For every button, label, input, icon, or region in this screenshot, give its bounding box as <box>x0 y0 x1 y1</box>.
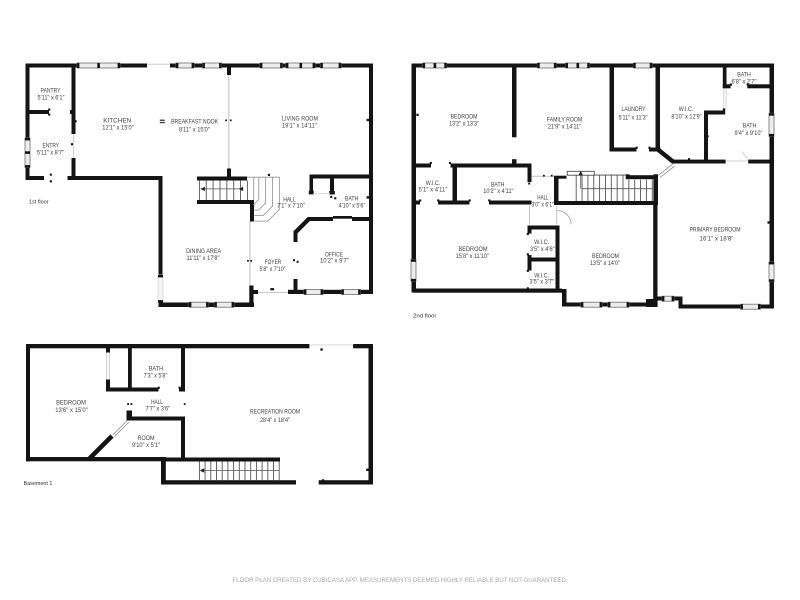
svg-text:12'1" x 15'0": 12'1" x 15'0" <box>102 126 134 132</box>
svg-text:5'1" x 4'11": 5'1" x 4'11" <box>419 187 448 193</box>
svg-text:3'5" x 4'6": 3'5" x 4'6" <box>530 247 555 253</box>
svg-text:7'1" x 7'10": 7'1" x 7'10" <box>277 204 305 210</box>
svg-text:16'1" x 18'8": 16'1" x 18'8" <box>700 236 734 242</box>
svg-text:2nd floor: 2nd floor <box>413 314 436 320</box>
svg-text:8'11" x 15'0": 8'11" x 15'0" <box>179 127 210 133</box>
svg-text:3'5" x 3'7": 3'5" x 3'7" <box>529 279 554 285</box>
svg-text:13'6" x 15'0": 13'6" x 15'0" <box>55 408 88 414</box>
svg-text:BATH: BATH <box>743 122 757 129</box>
svg-text:13'5" x 14'0": 13'5" x 14'0" <box>590 261 620 267</box>
svg-text:Basement 1: Basement 1 <box>24 481 53 487</box>
svg-text:BATH: BATH <box>345 196 359 203</box>
svg-text:FLOOR PLAN CREATED BY CUBICASA: FLOOR PLAN CREATED BY CUBICASA APP. MEAS… <box>233 577 568 584</box>
svg-text:5'8" x 7'10": 5'8" x 7'10" <box>259 267 285 273</box>
svg-text:W.I.C.: W.I.C. <box>534 239 549 246</box>
svg-text:BATH: BATH <box>149 365 164 372</box>
svg-text:BEDROOM: BEDROOM <box>459 246 488 253</box>
svg-text:FAMILY ROOM: FAMILY ROOM <box>547 116 583 123</box>
svg-text:10'2" x 4'11": 10'2" x 4'11" <box>483 189 513 195</box>
svg-text:HALL: HALL <box>151 399 163 406</box>
svg-text:3'0" x 6'1": 3'0" x 6'1" <box>531 202 554 208</box>
svg-text:HALL: HALL <box>537 194 549 201</box>
svg-text:OFFICE: OFFICE <box>325 251 343 258</box>
svg-text:6'8" x 2'7": 6'8" x 2'7" <box>732 79 757 85</box>
svg-text:15'8" x 11'10": 15'8" x 11'10" <box>456 254 489 260</box>
svg-text:28'4" x 18'4": 28'4" x 18'4" <box>260 418 290 424</box>
svg-text:ENTRY: ENTRY <box>43 142 60 149</box>
svg-text:11'11" x 17'8": 11'11" x 17'8" <box>187 256 220 262</box>
svg-text:4'10" x 5'6": 4'10" x 5'6" <box>339 204 366 210</box>
svg-text:BEDROOM: BEDROOM <box>592 253 619 260</box>
svg-text:BATH: BATH <box>491 181 505 188</box>
svg-text:RECREATION ROOM: RECREATION ROOM <box>250 409 300 416</box>
svg-text:5'11" x 6'1": 5'11" x 6'1" <box>38 96 65 102</box>
svg-text:5'11" x 8'7": 5'11" x 8'7" <box>37 150 64 156</box>
svg-text:HALL: HALL <box>283 196 296 203</box>
svg-text:ROOM: ROOM <box>138 435 155 442</box>
svg-text:BEDROOM: BEDROOM <box>451 113 478 120</box>
svg-text:8'10" x 12'9": 8'10" x 12'9" <box>671 114 701 120</box>
svg-text:W.I.C.: W.I.C. <box>426 180 441 187</box>
svg-text:LIVING ROOM: LIVING ROOM <box>282 115 318 122</box>
svg-text:BEDROOM: BEDROOM <box>56 399 86 406</box>
svg-text:KITCHEN: KITCHEN <box>103 117 131 124</box>
svg-text:5'11" x 11'3": 5'11" x 11'3" <box>618 115 647 121</box>
svg-text:LAUNDRY: LAUNDRY <box>622 106 647 113</box>
svg-text:PANTRY: PANTRY <box>41 88 62 95</box>
svg-text:FOYER: FOYER <box>265 259 282 266</box>
svg-text:13'2" x 13'3": 13'2" x 13'3" <box>449 122 479 128</box>
svg-text:1st floor: 1st floor <box>29 199 49 205</box>
svg-text:9'10" x 5'1": 9'10" x 5'1" <box>132 443 160 449</box>
svg-text:9'4" x 9'10": 9'4" x 9'10" <box>735 131 763 137</box>
svg-text:21'9" x 14'11": 21'9" x 14'11" <box>548 125 582 131</box>
svg-text:10'2" x 9'7": 10'2" x 9'7" <box>320 259 349 265</box>
svg-text:BATH: BATH <box>737 71 751 78</box>
svg-text:BREAKFAST NOOK: BREAKFAST NOOK <box>171 118 219 125</box>
svg-text:DINING AREA: DINING AREA <box>186 248 222 255</box>
svg-text:W.I.C.: W.I.C. <box>534 272 549 279</box>
svg-text:7'7" x 3'6": 7'7" x 3'6" <box>146 406 171 412</box>
svg-text:19'1" x 14'11": 19'1" x 14'11" <box>282 124 317 130</box>
svg-text:PRIMARY BEDROOM: PRIMARY BEDROOM <box>690 226 741 233</box>
svg-text:W.I.C.: W.I.C. <box>679 106 694 113</box>
svg-text:7'3" x 5'8": 7'3" x 5'8" <box>144 373 168 379</box>
